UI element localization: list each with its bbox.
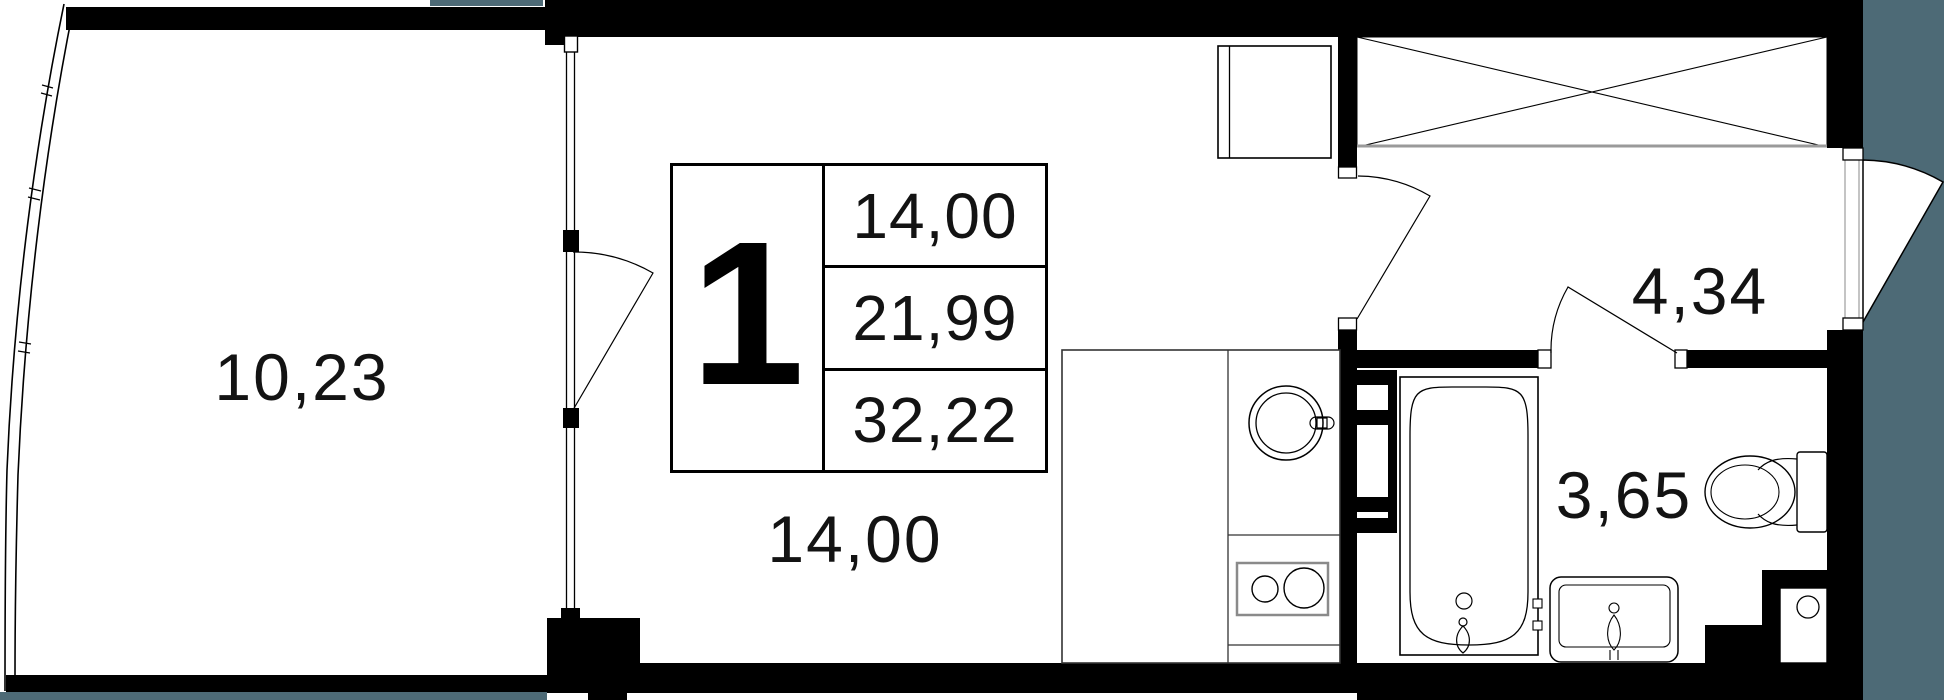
floor-plan: 10,23 14,00 4,34 3,65 1 14,00 21,99 32,2… — [0, 0, 1944, 700]
washbasin — [1550, 577, 1678, 662]
balcony-window — [565, 36, 578, 608]
hall-door — [1339, 167, 1431, 330]
unit-apartment-area: 21,99 — [825, 268, 1045, 370]
vent-shaft — [1780, 588, 1827, 663]
refrigerator — [1218, 46, 1331, 158]
adjacent-space-top — [430, 0, 543, 6]
unit-areas: 14,00 21,99 32,22 — [825, 166, 1045, 470]
unit-number: 1 — [673, 166, 825, 470]
unit-total-area: 32,22 — [825, 371, 1045, 470]
toilet — [1705, 452, 1827, 532]
living-room-area-label: 14,00 — [767, 506, 942, 572]
bathtub — [1400, 377, 1542, 655]
hallway-area-label: 4,34 — [1632, 258, 1768, 324]
balcony-glazing — [5, 4, 73, 691]
adjacent-space-bottom — [0, 692, 547, 700]
towel-rail — [1357, 370, 1397, 533]
entrance-doorway — [1843, 148, 1863, 330]
wardrobe — [1357, 37, 1827, 147]
unit-stamp-table: 1 14,00 21,99 32,22 — [670, 163, 1048, 473]
unit-living-area: 14,00 — [825, 166, 1045, 268]
balcony-door-swing — [573, 252, 653, 410]
balcony-area-label: 10,23 — [214, 344, 389, 410]
adjacent-space-right — [1863, 0, 1944, 700]
bathroom-area-label: 3,65 — [1556, 462, 1692, 528]
